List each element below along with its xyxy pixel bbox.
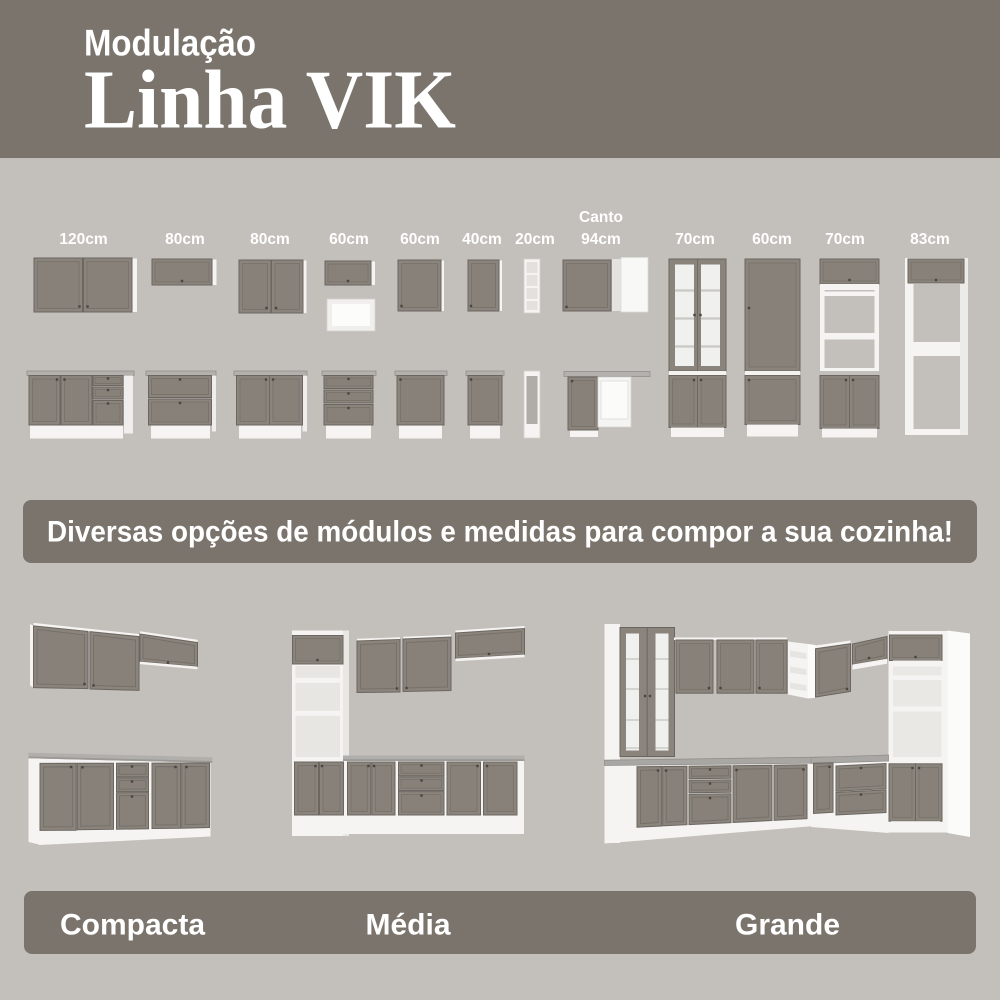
svg-text:80cm: 80cm (250, 231, 290, 248)
svg-text:Grande: Grande (735, 909, 840, 942)
svg-text:80cm: 80cm (165, 231, 205, 248)
svg-text:Compacta: Compacta (60, 909, 205, 942)
svg-text:60cm: 60cm (329, 231, 369, 248)
svg-text:Média: Média (365, 909, 450, 942)
svg-text:20cm: 20cm (515, 231, 555, 248)
svg-text:Diversas opções de módulos e m: Diversas opções de módulos e medidas par… (47, 516, 953, 549)
svg-text:Canto: Canto (579, 209, 623, 226)
svg-text:40cm: 40cm (462, 231, 502, 248)
svg-text:70cm: 70cm (825, 231, 865, 248)
svg-text:70cm: 70cm (675, 231, 715, 248)
svg-text:60cm: 60cm (400, 231, 440, 248)
svg-text:120cm: 120cm (59, 231, 107, 248)
svg-text:83cm: 83cm (910, 231, 950, 248)
svg-text:94cm: 94cm (581, 231, 621, 248)
svg-text:Linha VIK: Linha VIK (84, 54, 456, 147)
svg-text:60cm: 60cm (752, 231, 792, 248)
